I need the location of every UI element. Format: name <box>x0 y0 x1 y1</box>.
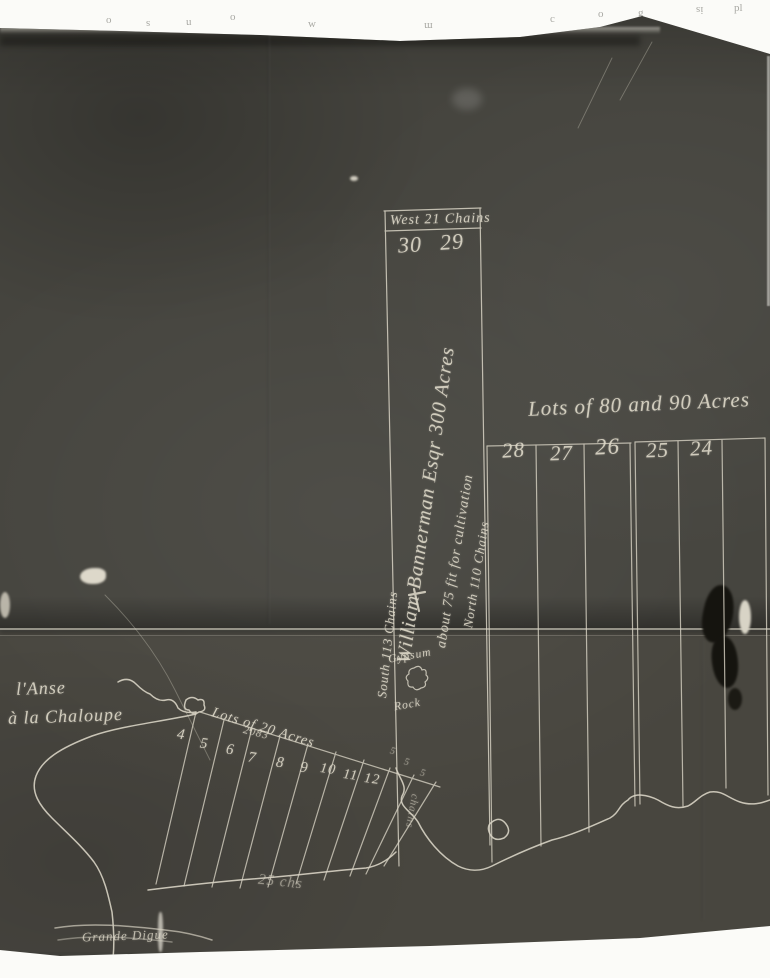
lot-number-6: 6 <box>225 741 236 759</box>
margin-text-fragment: o <box>230 12 236 24</box>
cove-name-line2: à la Chaloupe <box>8 704 124 729</box>
margin-text-fragment: w <box>308 18 316 30</box>
margin-text-fragment: u <box>186 16 192 28</box>
dike-label: Grande Digue <box>82 926 169 945</box>
margin-text-fragment: pl <box>734 2 743 14</box>
lot-number-5: 5 <box>199 735 210 753</box>
lot-number-11: 11 <box>342 767 359 785</box>
lot-number-10: 10 <box>319 761 337 779</box>
survey-linework <box>0 0 770 978</box>
east-lot-lines <box>487 438 768 862</box>
survey-map-photograph: West 21 Chains 30 29 South 113 Chains Wi… <box>0 0 770 978</box>
lot-number-4: 4 <box>176 726 187 744</box>
lot-number-24: 24 <box>689 435 713 461</box>
margin-text-fragment: c <box>550 13 555 25</box>
lot-number-26: 26 <box>594 433 620 460</box>
cove-name-line1: l'Anse <box>16 677 67 700</box>
lot-number-25: 25 <box>646 438 670 464</box>
gypsum-rock-outline <box>406 666 428 689</box>
margin-text-fragment: o <box>106 14 112 26</box>
margin-text-fragment: s <box>146 18 150 30</box>
lot-number-28: 28 <box>501 437 526 464</box>
lot-number-27: 27 <box>550 441 574 467</box>
lot-number-7: 7 <box>247 749 258 767</box>
margin-text-fragment: o <box>598 9 604 21</box>
margin-text-fragment: m <box>424 20 433 32</box>
strip-top-measure: West 21 Chains <box>390 211 491 230</box>
coastline <box>34 679 770 966</box>
margin-text-fragment: is <box>696 4 703 16</box>
lot-number-12: 12 <box>363 771 381 789</box>
lot-number-30: 30 <box>397 231 422 258</box>
lot-number-29: 29 <box>439 228 465 256</box>
lot-number-9: 9 <box>299 759 310 777</box>
lot-number-8: 8 <box>275 754 286 772</box>
